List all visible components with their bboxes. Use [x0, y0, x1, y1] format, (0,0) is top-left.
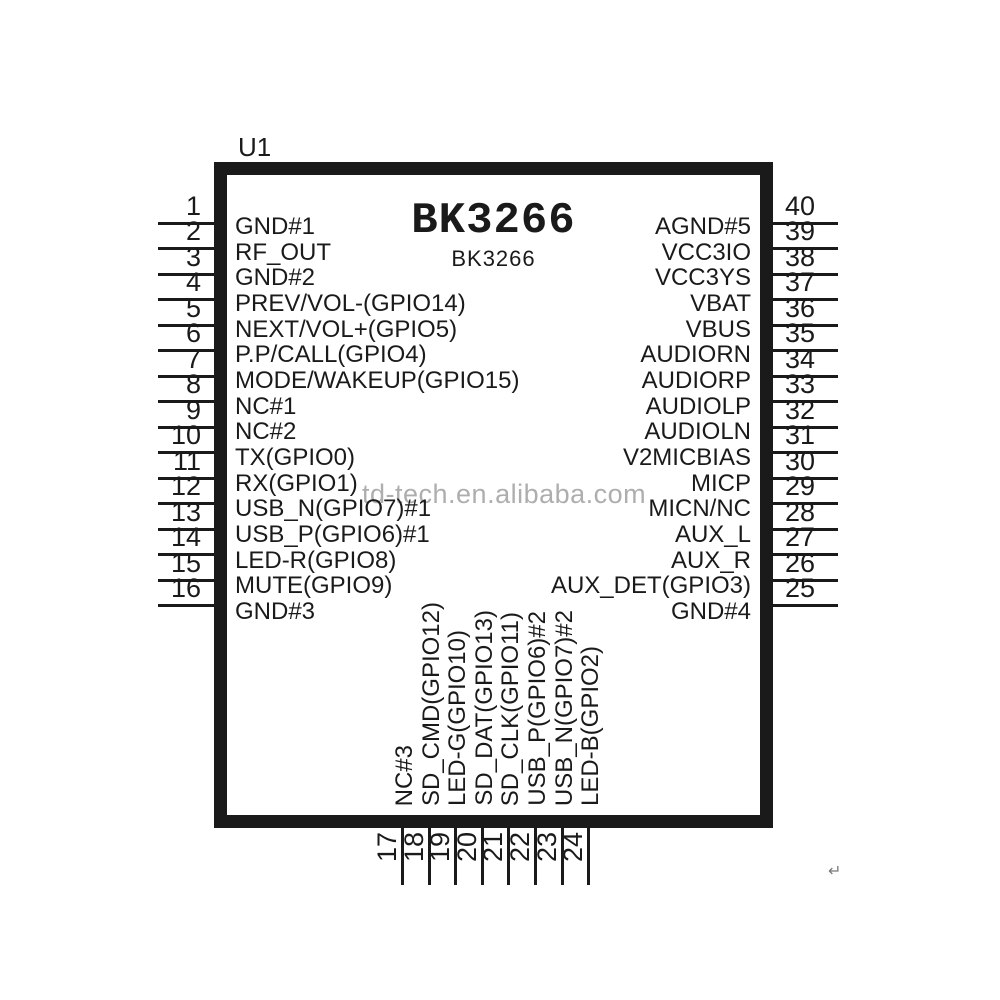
pin-number: 39 [785, 217, 845, 245]
pin-label: VCC3YS [655, 264, 751, 292]
pin-label: GND#2 [235, 264, 315, 292]
schematic-canvas: U1 BK3266 BK3266 1GND#12RF_OUT3GND#24PRE… [0, 0, 1000, 1000]
pin-label: VBAT [690, 290, 751, 318]
pin-label: MICP [691, 470, 751, 498]
pin-label: AUDIOLP [646, 393, 751, 421]
pin-number: 37 [785, 268, 845, 296]
pin-label: AUX_R [671, 547, 751, 575]
pin-label: MUTE(GPIO9) [235, 572, 392, 600]
pin-label: GND#3 [235, 598, 315, 626]
pin-label: NC#1 [235, 393, 296, 421]
pin-label: TX(GPIO0) [235, 444, 355, 472]
pin-number: 2 [141, 217, 201, 245]
pin-label: LED-G(GPIO10) [444, 630, 472, 806]
pin-number: 24 [559, 832, 587, 862]
pin-label: MICN/NC [648, 495, 751, 523]
pin-number: 33 [785, 370, 845, 398]
pin-line [158, 604, 215, 607]
pin-number: 17 [373, 832, 401, 862]
pin-label: AGND#5 [655, 213, 751, 241]
pin-label: LED-B(GPIO2) [577, 646, 605, 806]
pin-label: NC#2 [235, 418, 296, 446]
pin-label: GND#4 [671, 598, 751, 626]
pin-number: 19 [426, 832, 454, 862]
pin-number: 29 [785, 472, 845, 500]
pin-label: USB_P(GPIO6)#2 [524, 611, 552, 806]
pin-label: V2MICBIAS [623, 444, 751, 472]
pin-label: AUX_L [675, 521, 751, 549]
pin-number: 16 [141, 574, 201, 602]
pin-label: LED-R(GPIO8) [235, 547, 396, 575]
pin-number: 18 [400, 832, 428, 862]
pin-label: SD_CLK(GPIO11) [497, 612, 525, 806]
chip-refdes: U1 [238, 134, 271, 160]
return-arrow-mark: ↵ [828, 863, 841, 881]
pin-number: 21 [479, 832, 507, 862]
pin-label: MODE/WAKEUP(GPIO15) [235, 367, 519, 395]
pin-number: 4 [141, 268, 201, 296]
pin-label: VBUS [686, 316, 751, 344]
pin-label: USB_N(GPIO7)#2 [551, 610, 579, 806]
pin-number: 22 [506, 832, 534, 862]
pin-number: 12 [141, 472, 201, 500]
pin-number: 6 [141, 319, 201, 347]
pin-label: NC#3 [391, 745, 419, 806]
pin-label: AUDIORN [640, 341, 751, 369]
pin-label: NEXT/VOL+(GPIO5) [235, 316, 457, 344]
pin-label: PREV/VOL-(GPIO14) [235, 290, 466, 318]
pin-label: AUDIOLN [644, 418, 751, 446]
pin-label: VCC3IO [662, 239, 751, 267]
pin-number: 14 [141, 523, 201, 551]
pin-label: P.P/CALL(GPIO4) [235, 341, 427, 369]
pin-label: RX(GPIO1) [235, 470, 358, 498]
pin-label: USB_P(GPIO6)#1 [235, 521, 430, 549]
pin-line [772, 604, 838, 607]
pin-number: 20 [453, 832, 481, 862]
pin-number: 27 [785, 523, 845, 551]
pin-number: 25 [785, 574, 845, 602]
pin-number: 8 [141, 370, 201, 398]
pin-label: AUDIORP [642, 367, 751, 395]
pin-number: 23 [533, 832, 561, 862]
pin-label: USB_N(GPIO7)#1 [235, 495, 431, 523]
pin-number: 10 [141, 421, 201, 449]
pin-label: GND#1 [235, 213, 315, 241]
pin-label: SD_DAT(GPIO13) [471, 610, 499, 806]
pin-number: 35 [785, 319, 845, 347]
pin-label: RF_OUT [235, 239, 331, 267]
pin-label: SD_CMD(GPIO12) [418, 602, 446, 806]
pin-label: AUX_DET(GPIO3) [551, 572, 751, 600]
pin-number: 31 [785, 421, 845, 449]
